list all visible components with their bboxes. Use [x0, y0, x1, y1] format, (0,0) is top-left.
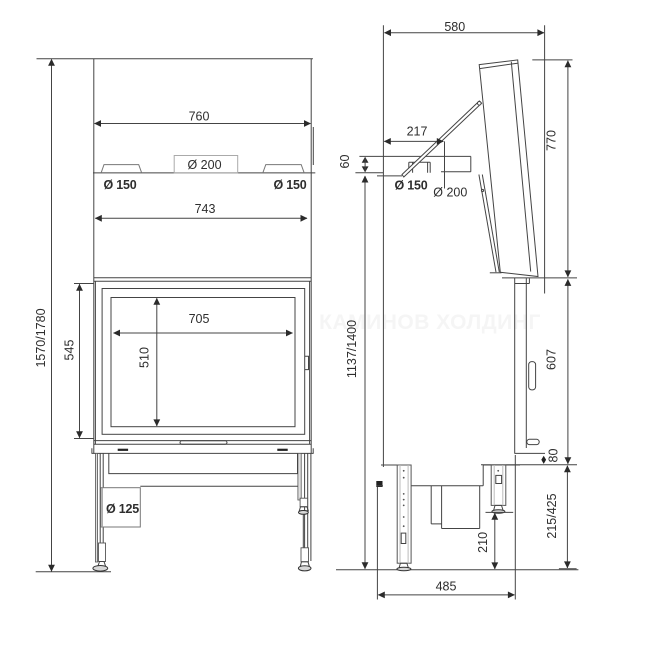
- svg-text:Ø 150: Ø 150: [394, 179, 427, 193]
- svg-text:545: 545: [62, 340, 76, 361]
- svg-text:485: 485: [436, 580, 457, 594]
- svg-text:705: 705: [189, 312, 210, 326]
- svg-text:Ø 150: Ø 150: [273, 178, 306, 192]
- svg-text:210: 210: [476, 532, 490, 553]
- svg-text:215/425: 215/425: [545, 493, 559, 538]
- svg-text:743: 743: [195, 202, 216, 216]
- svg-text:760: 760: [189, 110, 210, 124]
- svg-text:1570/1780: 1570/1780: [34, 308, 48, 367]
- svg-text:580: 580: [444, 20, 465, 34]
- svg-text:60: 60: [338, 155, 352, 169]
- svg-text:Ø 125: Ø 125: [106, 502, 139, 516]
- svg-text:510: 510: [137, 347, 151, 368]
- svg-text:1137/1400: 1137/1400: [345, 320, 359, 378]
- svg-text:Ø 200: Ø 200: [187, 158, 221, 172]
- svg-text:Ø 200: Ø 200: [433, 185, 467, 199]
- svg-text:Ø 150: Ø 150: [103, 178, 136, 192]
- svg-text:217: 217: [407, 125, 428, 139]
- svg-text:770: 770: [544, 130, 558, 151]
- svg-text:607: 607: [544, 349, 558, 370]
- svg-text:80: 80: [546, 449, 560, 463]
